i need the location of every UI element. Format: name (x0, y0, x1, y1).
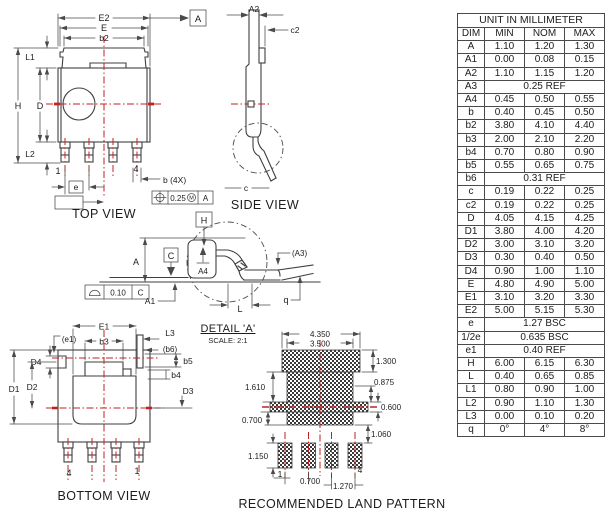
profile-view-drawing: H A4 A C A1 (80, 210, 460, 318)
dim-label-a1: A1 (145, 296, 156, 306)
flatness-value: 0.10 (110, 289, 126, 298)
pitch-label: e (74, 182, 79, 192)
dimension-table: UNIT IN MILLIMETER DIM MIN NOM MAX A1.10… (457, 13, 605, 437)
max-cell: 0.75 (565, 160, 605, 173)
min-cell: 0.00 (485, 410, 525, 423)
dim-tab-height: 1.300 (376, 357, 397, 366)
col-header-min: MIN (485, 28, 525, 41)
dim-label-b4x: b (4X) (163, 175, 186, 185)
top-view-drawing: E2 A E b2 H D L1 (0, 0, 220, 228)
min-cell: 0° (485, 424, 525, 437)
span-cell: 0.31 REF (485, 173, 605, 186)
max-cell: 0.50 (565, 107, 605, 120)
pin4-label: 4 (133, 164, 138, 174)
dim-label-d2: D2 (27, 382, 38, 392)
side-view-outline (246, 10, 276, 181)
nom-cell: 0.22 (525, 186, 565, 199)
table-row: H6.006.156.30 (458, 358, 605, 371)
table-row: 1/2e0.635 BSC (458, 331, 605, 344)
pin4-label: 4 (358, 465, 363, 475)
nom-cell: 1.15 (525, 67, 565, 80)
dim-cell: b3 (458, 133, 485, 146)
position-tolerance-frame: 0.25 M A (152, 191, 213, 204)
min-cell: 4.80 (485, 278, 525, 291)
table-row: A1.101.201.30 (458, 41, 605, 54)
dim-cell: e (458, 318, 485, 331)
span-cell: 0.40 REF (485, 344, 605, 357)
table-row: b32.002.102.20 (458, 133, 605, 146)
dim-cell: c2 (458, 199, 485, 212)
col-header-nom: NOM (525, 28, 565, 41)
table-row: L10.800.901.00 (458, 384, 605, 397)
dim-label-a2: A2 (249, 4, 260, 14)
max-cell: 6.30 (565, 358, 605, 371)
dim-cell: e1 (458, 344, 485, 357)
max-cell: 8° (565, 424, 605, 437)
datum-h-flag: H (201, 216, 208, 226)
nom-cell: 3.20 (525, 292, 565, 305)
table-row: b23.804.104.40 (458, 120, 605, 133)
col-header-max: MAX (565, 28, 605, 41)
max-cell: 0.20 (565, 410, 605, 423)
min-cell: 3.80 (485, 226, 525, 239)
nom-cell: 6.15 (525, 358, 565, 371)
table-row: E4.804.905.00 (458, 278, 605, 291)
dim-cell: b4 (458, 146, 485, 159)
min-cell: 0.00 (485, 54, 525, 67)
dim-mid-height: 0.875 (374, 378, 395, 387)
max-cell: 4.40 (565, 120, 605, 133)
dim-label-c: c (244, 183, 249, 193)
max-cell: 0.55 (565, 94, 605, 107)
min-cell: 0.55 (485, 160, 525, 173)
dim-cell: E (458, 278, 485, 291)
dim-cell: c (458, 186, 485, 199)
dim-inner-width: 3.500 (310, 340, 331, 349)
datum-a-flag: A (195, 14, 202, 25)
dim-left-upper: 1.610 (245, 383, 266, 392)
max-cell: 3.30 (565, 292, 605, 305)
nom-cell: 0.65 (525, 160, 565, 173)
table-row: e1.27 BSC (458, 318, 605, 331)
dim-cell: E2 (458, 305, 485, 318)
dim-cell: D1 (458, 226, 485, 239)
top-view-leads (60, 142, 142, 162)
min-cell: 0.40 (485, 107, 525, 120)
min-cell: 0.90 (485, 265, 525, 278)
table-row: b0.400.450.50 (458, 107, 605, 120)
table-title-row: UNIT IN MILLIMETER (458, 14, 605, 28)
min-cell: 5.00 (485, 305, 525, 318)
max-cell: 2.20 (565, 133, 605, 146)
nom-cell: 0.90 (525, 384, 565, 397)
datum-c-flag: C (168, 251, 175, 261)
span-cell: 0.635 BSC (485, 331, 605, 344)
dim-label-h: H (15, 101, 22, 111)
max-cell: 0.50 (565, 252, 605, 265)
land-pattern-caption: RECOMMENDED LAND PATTERN (238, 497, 445, 511)
table-row: D4.054.154.25 (458, 212, 605, 225)
nom-cell: 0.45 (525, 107, 565, 120)
nom-cell: 4.00 (525, 226, 565, 239)
dim-label-l3: L3 (165, 328, 175, 338)
min-cell: 0.19 (485, 186, 525, 199)
max-cell: 4.20 (565, 226, 605, 239)
mmc-modifier-letter: M (189, 196, 194, 202)
dim-left-lower: 0.700 (242, 416, 263, 425)
table-title: UNIT IN MILLIMETER (458, 14, 605, 28)
nom-cell: 4.10 (525, 120, 565, 133)
tolerance-datum: A (203, 194, 209, 203)
pin4-label: 4 (66, 468, 71, 478)
table-row: c0.190.220.25 (458, 186, 605, 199)
nom-cell: 0.50 (525, 94, 565, 107)
table-row: b40.700.800.90 (458, 146, 605, 159)
table-row: q0°4°8° (458, 424, 605, 437)
nom-cell: 4.90 (525, 278, 565, 291)
tolerance-value: 0.25 (170, 194, 186, 203)
max-cell: 0.25 (565, 186, 605, 199)
dim-label-l2: L2 (25, 149, 35, 159)
dim-pitch: 1.270 (333, 482, 354, 491)
package-outline-drawing: E2 A E b2 H D L1 (0, 0, 607, 514)
dim-label-b3: b3 (99, 337, 109, 347)
dim-label-e: E (101, 23, 107, 33)
dim-cell: 1/2e (458, 331, 485, 344)
dim-cell: D2 (458, 239, 485, 252)
table-row: L0.400.650.85 (458, 371, 605, 384)
dim-cell: D3 (458, 252, 485, 265)
dim-label-e1: E1 (99, 322, 110, 332)
max-cell: 3.20 (565, 239, 605, 252)
min-cell: 0.40 (485, 371, 525, 384)
nom-cell: 5.15 (525, 305, 565, 318)
dim-bar-height: 0.600 (381, 403, 402, 412)
table-row: A30.25 REF (458, 80, 605, 93)
dim-cell: L3 (458, 410, 485, 423)
mmc-modifier-icon: M (188, 194, 196, 202)
dim-label-d3: D3 (183, 386, 194, 396)
position-tolerance-icon (154, 192, 166, 204)
dim-cell: A1 (458, 54, 485, 67)
min-cell: 0.19 (485, 199, 525, 212)
table-row: A10.000.080.15 (458, 54, 605, 67)
table-row: L30.000.100.20 (458, 410, 605, 423)
dim-cell: b (458, 107, 485, 120)
nom-cell: 3.10 (525, 239, 565, 252)
table-row: E25.005.155.30 (458, 305, 605, 318)
table-row: b50.550.650.75 (458, 160, 605, 173)
dim-label-e2: E2 (98, 13, 109, 23)
min-cell: 3.00 (485, 239, 525, 252)
max-cell: 0.25 (565, 199, 605, 212)
table-row: D13.804.004.20 (458, 226, 605, 239)
flatness-datum: C (138, 289, 144, 298)
pin1-label: 1 (55, 166, 60, 176)
pin1-label: 1 (134, 466, 139, 476)
nom-cell: 0.22 (525, 199, 565, 212)
dim-cell: L1 (458, 384, 485, 397)
dim-cell: A4 (458, 94, 485, 107)
dim-cell: D (458, 212, 485, 225)
dim-cell: E1 (458, 292, 485, 305)
dim-outer-width: 4.350 (310, 330, 331, 339)
dim-cell: A3 (458, 80, 485, 93)
dim-cell: H (458, 358, 485, 371)
min-cell: 2.00 (485, 133, 525, 146)
nom-cell: 1.20 (525, 41, 565, 54)
min-cell: 0.80 (485, 384, 525, 397)
dim-label-c2: c2 (291, 25, 300, 35)
dim-label-a: A (133, 257, 139, 267)
nom-cell: 0.10 (525, 410, 565, 423)
max-cell: 0.15 (565, 54, 605, 67)
span-cell: 0.25 REF (485, 80, 605, 93)
nom-cell: 0.08 (525, 54, 565, 67)
max-cell: 1.10 (565, 265, 605, 278)
nom-cell: 0.65 (525, 371, 565, 384)
dim-cell: L (458, 371, 485, 384)
dim-cell: A (458, 41, 485, 54)
table-header-row: DIM MIN NOM MAX (458, 28, 605, 41)
min-cell: 0.90 (485, 397, 525, 410)
min-cell: 1.10 (485, 67, 525, 80)
table-row: e10.40 REF (458, 344, 605, 357)
dim-label-a3: (A3) (292, 249, 307, 258)
dim-label-e1-ref: (e1) (62, 335, 77, 344)
dim-cell: b2 (458, 120, 485, 133)
min-cell: 3.10 (485, 292, 525, 305)
table-row: D40.901.001.10 (458, 265, 605, 278)
dim-gap: 1.060 (371, 430, 392, 439)
dim-pad-gap: 0.700 (300, 477, 321, 486)
table-row: D23.003.103.20 (458, 239, 605, 252)
max-cell: 4.25 (565, 212, 605, 225)
min-cell: 0.70 (485, 146, 525, 159)
pin1-label: 1 (278, 469, 283, 479)
land-pattern-drawing: 4.350 3.500 1.300 0.875 0.600 1.060 1. (240, 312, 465, 514)
side-view-drawing: A2 c2 c SIDE VIEW (215, 0, 370, 220)
max-cell: 0.85 (565, 371, 605, 384)
min-cell: 6.00 (485, 358, 525, 371)
table-row: A40.450.500.55 (458, 94, 605, 107)
dimension-table-body: A1.101.201.30A10.000.080.15A21.101.151.2… (458, 41, 605, 437)
max-cell: 1.30 (565, 41, 605, 54)
nom-cell: 0.80 (525, 146, 565, 159)
dim-label-q: q (283, 295, 288, 305)
nom-cell: 1.00 (525, 265, 565, 278)
dim-label-b4: b4 (171, 370, 181, 380)
min-cell: 0.30 (485, 252, 525, 265)
max-cell: 5.30 (565, 305, 605, 318)
dim-label-l1: L1 (25, 52, 35, 62)
dim-label-a4: A4 (198, 267, 208, 276)
nom-cell: 4.15 (525, 212, 565, 225)
span-cell: 1.27 BSC (485, 318, 605, 331)
nom-cell: 0.40 (525, 252, 565, 265)
side-view-dimensions: A2 c2 c SIDE VIEW (225, 4, 300, 212)
min-cell: 3.80 (485, 120, 525, 133)
flatness-tolerance-frame: 0.10 C (85, 285, 149, 299)
min-cell: 1.10 (485, 41, 525, 54)
max-cell: 5.00 (565, 278, 605, 291)
max-cell: 1.20 (565, 67, 605, 80)
table-row: c20.190.220.25 (458, 199, 605, 212)
dim-label-d: D (37, 101, 44, 111)
dim-cell: D4 (458, 265, 485, 278)
max-cell: 0.90 (565, 146, 605, 159)
bottom-view-caption: BOTTOM VIEW (57, 489, 150, 503)
max-cell: 1.30 (565, 397, 605, 410)
max-cell: 1.00 (565, 384, 605, 397)
dim-label-b5: b5 (183, 356, 193, 366)
table-row: E13.103.203.30 (458, 292, 605, 305)
dim-pad-height: 1.150 (248, 452, 269, 461)
min-cell: 4.05 (485, 212, 525, 225)
detail-a-circle (233, 123, 283, 173)
dim-cell: b6 (458, 173, 485, 186)
table-row: b60.31 REF (458, 173, 605, 186)
nom-cell: 4° (525, 424, 565, 437)
min-cell: 0.45 (485, 94, 525, 107)
dim-cell: A2 (458, 67, 485, 80)
dim-cell: L2 (458, 397, 485, 410)
table-row: A21.101.151.20 (458, 67, 605, 80)
dim-label-b6-ref: (b6) (163, 345, 178, 354)
dim-label-b2: b2 (99, 33, 109, 43)
bottom-view-drawing: E1 b3 (e1) D4 D2 D1 (0, 312, 205, 514)
table-row: D30.300.400.50 (458, 252, 605, 265)
dim-cell: q (458, 424, 485, 437)
col-header-dim: DIM (458, 28, 485, 41)
seating-plane-symbol-icon (90, 290, 101, 295)
table-row: L20.901.101.30 (458, 397, 605, 410)
dim-cell: b5 (458, 160, 485, 173)
dim-label-d1: D1 (9, 384, 20, 394)
nom-cell: 2.10 (525, 133, 565, 146)
nom-cell: 1.10 (525, 397, 565, 410)
